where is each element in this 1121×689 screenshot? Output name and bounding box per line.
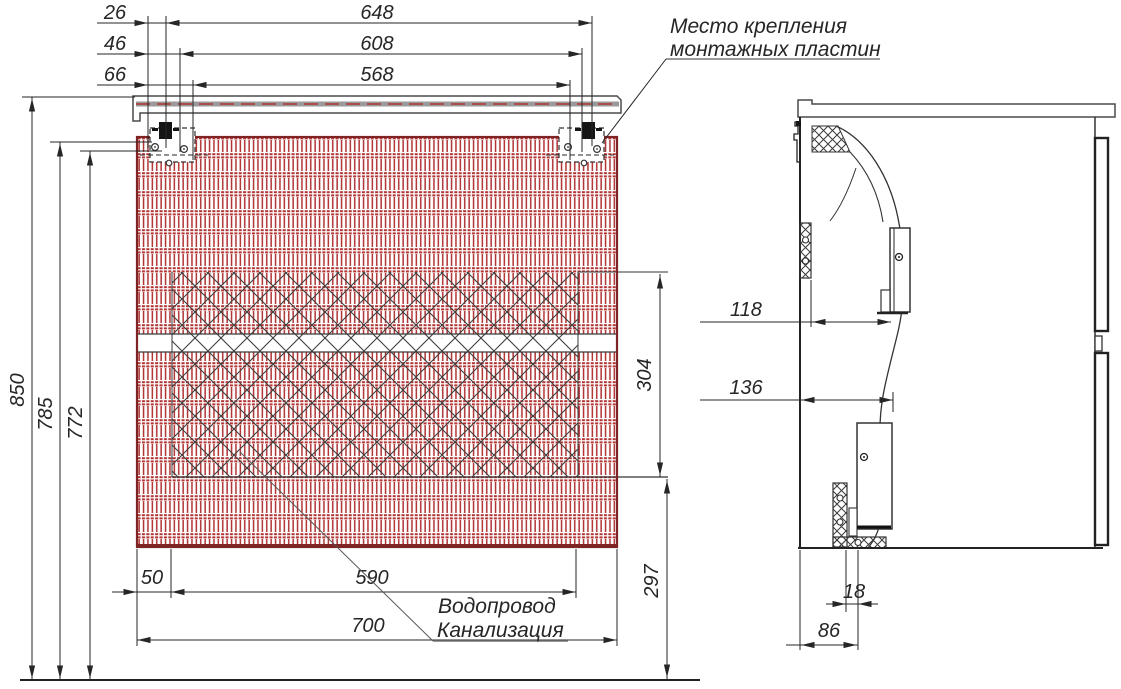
dim-608: 608 <box>360 33 393 55</box>
dim-66: 66 <box>104 64 127 86</box>
dim-850: 850 <box>7 373 29 406</box>
side-lower-bracket <box>833 423 892 548</box>
side-countertop <box>798 100 1115 117</box>
dim-304: 304 <box>634 358 656 391</box>
crosshatch-band <box>172 272 578 477</box>
dim-50: 50 <box>141 567 163 589</box>
dim-136: 136 <box>729 377 763 399</box>
dim-772: 772 <box>65 406 87 439</box>
mounting-annotation: Место крепления монтажных пластин <box>602 15 881 143</box>
front-bottom-dimensions: 50 590 700 <box>20 549 700 680</box>
dim-568: 568 <box>360 64 393 86</box>
front-countertop <box>133 96 621 121</box>
mounting-note-line2: монтажных пластин <box>670 38 881 61</box>
dim-86: 86 <box>818 620 841 642</box>
plumbing-note-line1: Водопровод <box>438 595 556 618</box>
dim-46: 46 <box>104 33 127 55</box>
side-back-panel <box>794 117 801 548</box>
front-cabinet-body <box>137 137 668 547</box>
front-view: 26 46 66 648 608 568 850 785 772 <box>7 2 881 680</box>
dim-118: 118 <box>730 299 762 321</box>
dim-18: 18 <box>843 581 865 603</box>
technical-drawing-canvas: 26 46 66 648 608 568 850 785 772 <box>0 0 1121 689</box>
drawing-svg: 26 46 66 648 608 568 850 785 772 <box>0 0 1121 689</box>
dim-297: 297 <box>641 563 663 598</box>
mounting-note-line1: Место крепления <box>670 15 847 38</box>
dim-648: 648 <box>360 2 393 24</box>
plumbing-note-line2: Канализация <box>437 619 564 642</box>
side-view: 118 136 18 86 <box>700 100 1115 650</box>
dim-785: 785 <box>35 396 57 430</box>
side-upper-mount-plate <box>800 223 811 278</box>
dim-26: 26 <box>103 2 127 24</box>
side-upper-bracket <box>877 228 910 313</box>
dim-700: 700 <box>351 615 384 637</box>
